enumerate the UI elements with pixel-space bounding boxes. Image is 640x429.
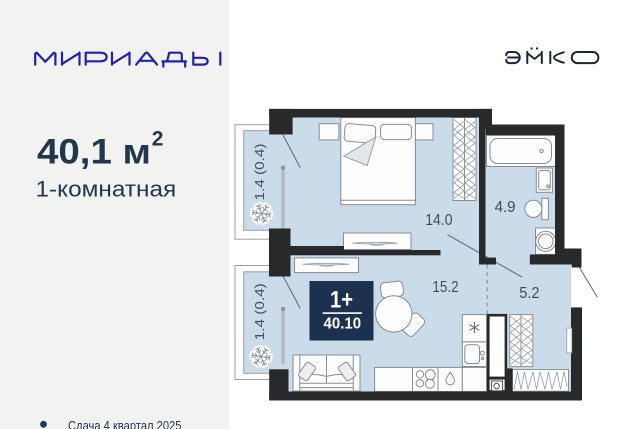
svg-text:1.4 (0.4): 1.4 (0.4): [252, 144, 267, 201]
svg-text:Сдача 4 квартал 2025: Сдача 4 квартал 2025: [68, 418, 182, 429]
svg-text:14.0: 14.0: [425, 212, 452, 229]
svg-text:40.10: 40.10: [324, 316, 362, 333]
svg-text:1.4 (0.4): 1.4 (0.4): [252, 283, 267, 340]
svg-text:40,1 м: 40,1 м: [37, 133, 151, 172]
svg-text:2: 2: [152, 128, 164, 151]
svg-text:15.2: 15.2: [432, 279, 458, 296]
svg-text:4.9: 4.9: [495, 199, 516, 216]
svg-text:1+: 1+: [330, 286, 353, 313]
svg-text:5.2: 5.2: [519, 285, 539, 302]
svg-text:1-комнатная: 1-комнатная: [36, 177, 177, 202]
